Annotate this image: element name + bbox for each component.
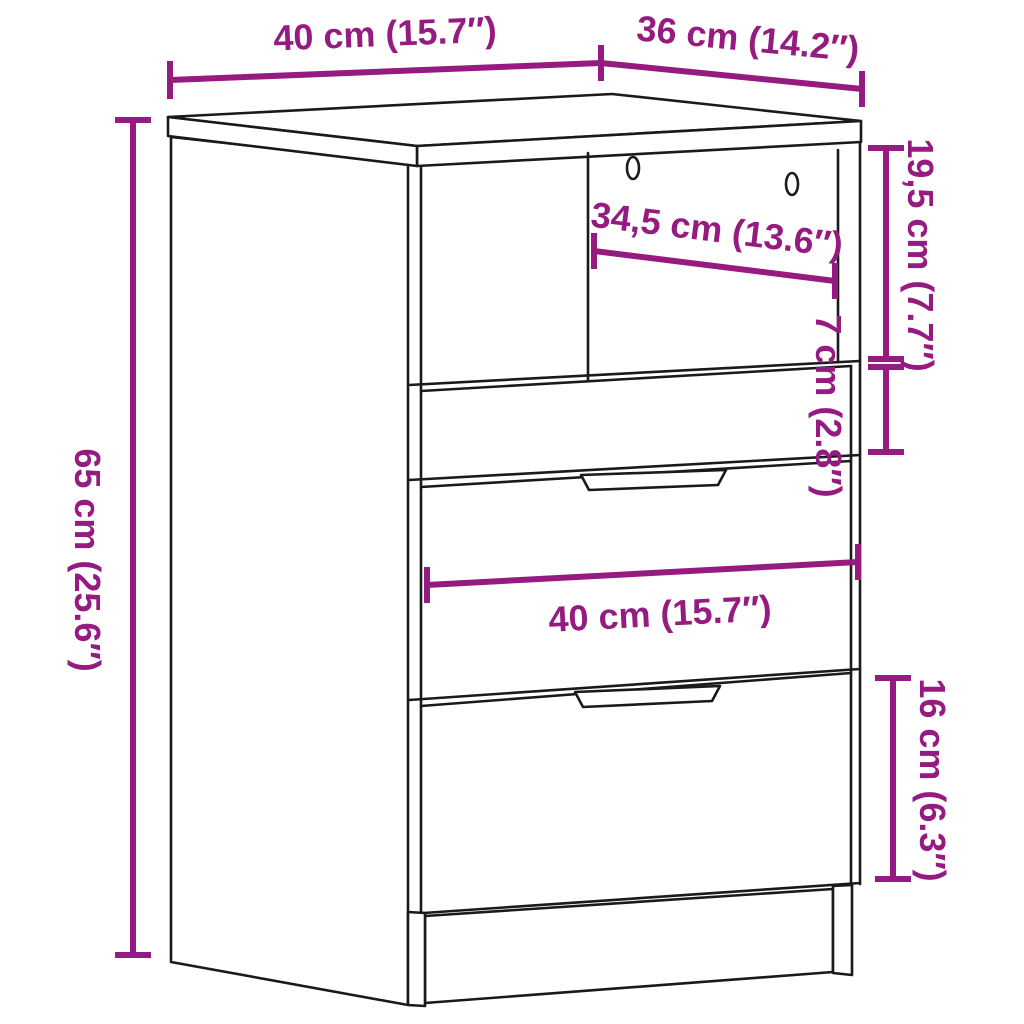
dimension-diagram: 40 cm (15.7″) 36 cm (14.2″) 65 cm (25.6″… [0, 0, 1024, 1024]
dimension-line-bottom-drawer-height [875, 678, 911, 879]
cabinet-line-drawing [0, 0, 1024, 1024]
drawer3-handle [575, 686, 720, 707]
dimension-line-overall-height [115, 120, 151, 955]
drawer1-top-edge [421, 366, 851, 391]
dim-label-top-drawer-height: 7 cm (2.8″) [810, 314, 846, 497]
dim-label-bottom-drawer-height: 16 cm (6.3″) [914, 678, 950, 881]
screw-hole-left [627, 157, 639, 179]
dimension-line-niche-height [868, 148, 904, 359]
screw-hole-right [786, 173, 798, 195]
right-leg [833, 885, 852, 975]
niche-floor-edge [409, 361, 860, 385]
dim-label-top-width: 40 cm (15.7″) [273, 12, 498, 57]
plinth-front [425, 889, 833, 1003]
drawer2-handle [581, 470, 726, 490]
dimension-line-top-drawer-height [868, 367, 904, 452]
left-leg [408, 912, 425, 1006]
dim-label-overall-height: 65 cm (25.6″) [69, 448, 105, 671]
dim-label-niche-height: 19,5 cm (7.7″) [902, 138, 938, 371]
side-panel [171, 137, 408, 1005]
